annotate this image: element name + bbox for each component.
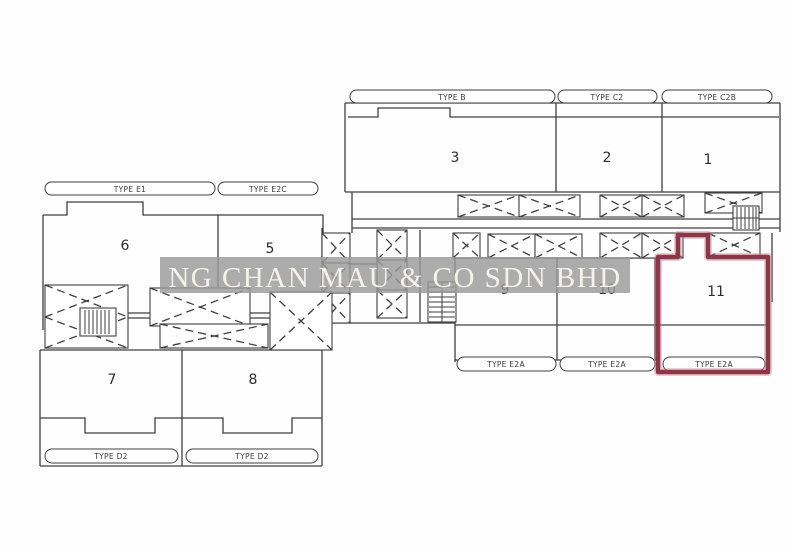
- type-c2b-label-pill: TYPE C2B: [662, 90, 772, 103]
- lift-icon: [80, 308, 116, 336]
- watermark-text: NG CHAN MAU & CO SDN BHD: [168, 262, 621, 294]
- unit-11-number: 11: [707, 284, 725, 300]
- crossed-box: [458, 195, 519, 217]
- unit-8-number: 8: [249, 372, 258, 388]
- floorplan-page: TYPE B TYPE C2 TYPE C2B TYPE E1 TYPE E2C…: [0, 0, 786, 551]
- type-d2-label-1: TYPE D2: [93, 452, 127, 461]
- type-e2a-label-pill-1: TYPE E2A: [457, 357, 556, 371]
- crossed-box: [519, 195, 580, 217]
- unit-5-number: 5: [266, 241, 275, 257]
- type-e2c-label-pill: TYPE E2C: [218, 182, 318, 195]
- type-c2-label: TYPE C2: [590, 93, 624, 102]
- type-d2-label-2: TYPE D2: [234, 452, 268, 461]
- crossed-box: [642, 195, 684, 217]
- type-d2-label-pill-2: TYPE D2: [186, 449, 318, 463]
- type-e2c-label: TYPE E2C: [248, 185, 287, 194]
- crossed-box: [270, 292, 332, 350]
- type-c2-label-pill: TYPE C2: [558, 90, 657, 103]
- crossed-box: [535, 234, 582, 258]
- unit-1-number: 1: [704, 152, 713, 168]
- type-e2a-label-pill-2: TYPE E2A: [560, 357, 655, 371]
- type-d2-label-pill-1: TYPE D2: [45, 449, 178, 463]
- unit-2-number: 2: [603, 150, 612, 166]
- unit-7-number: 7: [108, 372, 117, 388]
- type-e1-label: TYPE E1: [113, 185, 146, 194]
- crossed-box: [160, 324, 268, 348]
- crossed-box: [377, 290, 407, 318]
- unit-6-number: 6: [121, 238, 130, 254]
- crossed-box: [377, 230, 407, 260]
- crossed-box: [488, 234, 535, 258]
- vent-grille-icon: [733, 206, 759, 230]
- crossed-box: [600, 195, 642, 217]
- unit-3-number: 3: [451, 150, 460, 166]
- unit-11-highlight-outline: [658, 235, 768, 372]
- type-e1-label-pill: TYPE E1: [45, 182, 215, 195]
- type-e2a-label-2: TYPE E2A: [587, 360, 626, 369]
- crossed-box: [453, 233, 480, 258]
- crossed-box: [600, 233, 642, 258]
- type-c2b-label: TYPE C2B: [697, 93, 736, 102]
- type-e2a-label-1: TYPE E2A: [486, 360, 525, 369]
- floorplan-svg: TYPE B TYPE C2 TYPE C2B TYPE E1 TYPE E2C…: [0, 0, 786, 551]
- type-b-label: TYPE B: [437, 93, 466, 102]
- type-b-label-pill: TYPE B: [350, 90, 555, 103]
- type-e2a-label-3: TYPE E2A: [694, 360, 733, 369]
